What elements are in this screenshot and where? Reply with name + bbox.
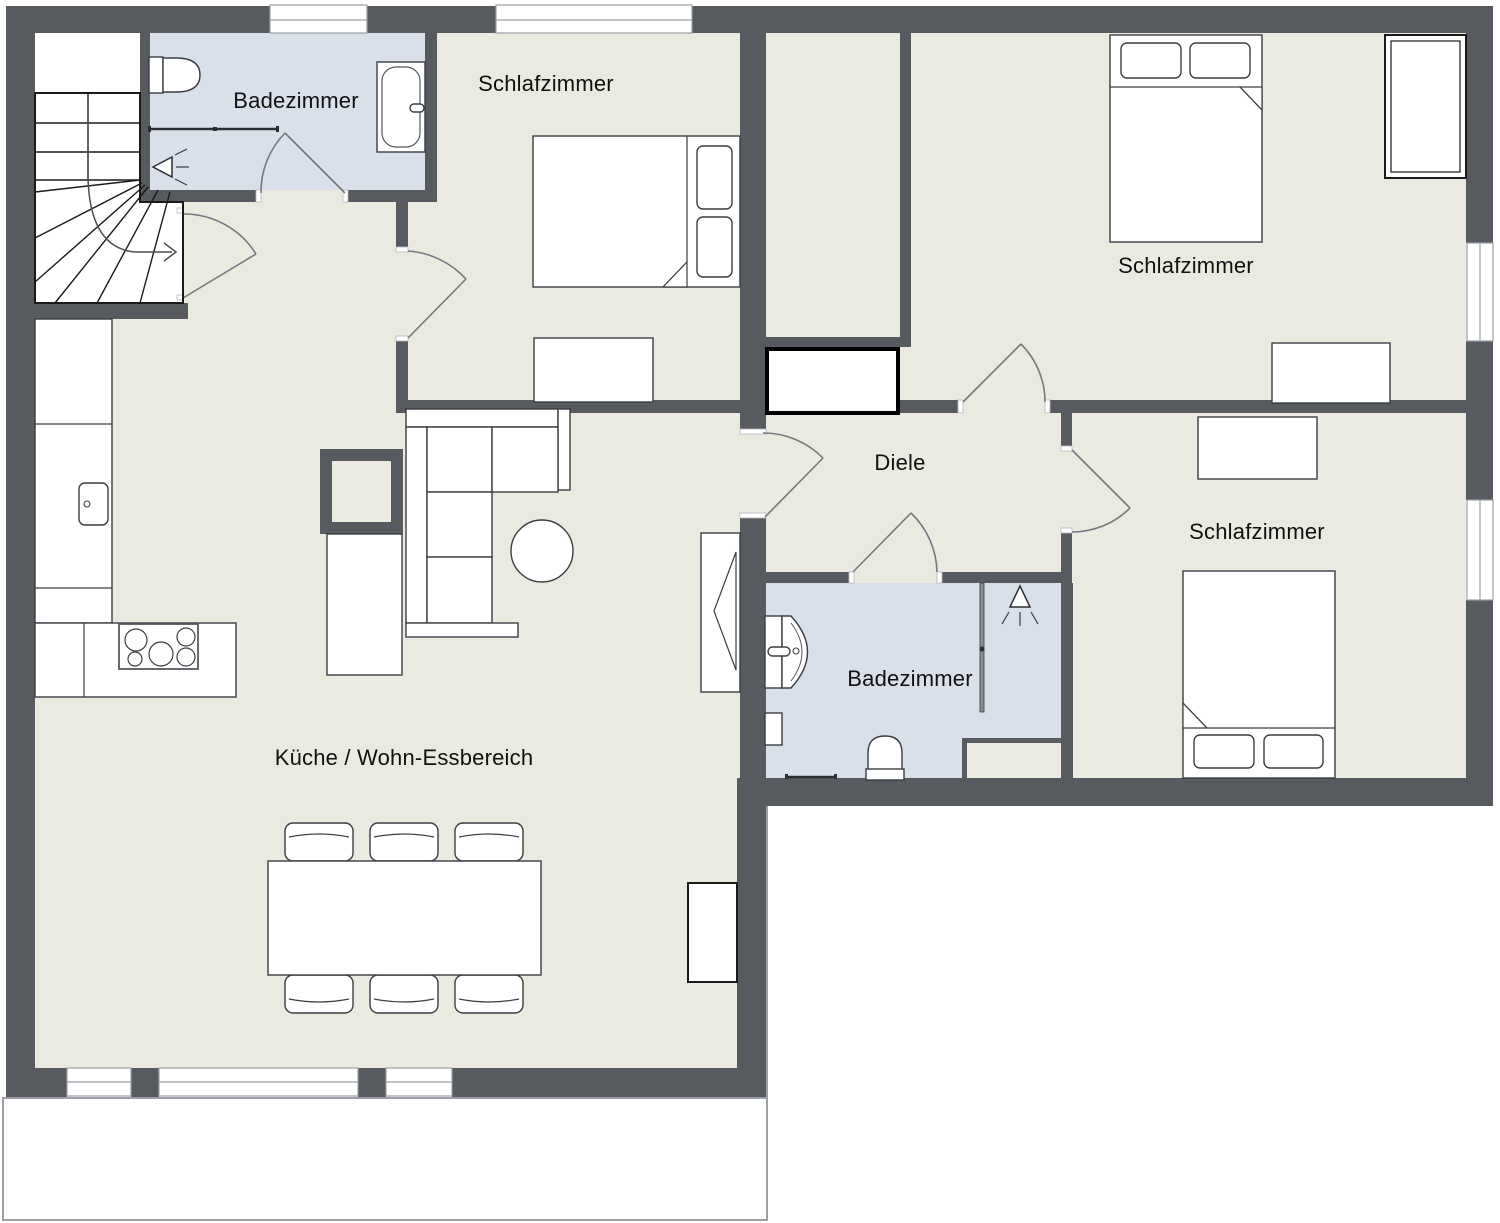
room-label-schlafzimmer-top-right: Schlafzimmer	[1118, 253, 1254, 279]
dresser-icon	[1198, 417, 1317, 479]
dining-table-icon	[268, 823, 541, 1013]
cooktop-icon	[119, 624, 198, 669]
tv-cabinet-icon	[701, 533, 740, 692]
bedroom-right-furniture	[1183, 417, 1335, 778]
sideboard-icon	[327, 534, 402, 675]
room-label-diele: Diele	[874, 450, 925, 476]
window	[1467, 243, 1493, 341]
room-label-badezimmer-top: Badezimmer	[233, 88, 358, 114]
chair-icon	[370, 975, 438, 1013]
window	[1467, 500, 1493, 600]
window	[270, 5, 367, 33]
wardrobe-icon	[1385, 35, 1466, 178]
shower-divider-icon	[980, 583, 985, 712]
window	[496, 5, 692, 33]
shelf-icon	[765, 713, 782, 745]
floor-plan: Badezimmer Schlafzimmer Schlafzimmer Die…	[0, 0, 1500, 1223]
toilet-icon	[866, 736, 904, 780]
chair-icon	[370, 823, 438, 861]
hall-closet-icon	[767, 349, 898, 413]
window	[386, 1068, 452, 1096]
column-icon	[320, 449, 403, 534]
pillow-icon	[1121, 43, 1181, 78]
toilet-icon	[149, 57, 200, 93]
kitchen-sink-icon	[79, 483, 108, 525]
pillow-icon	[1264, 735, 1323, 768]
double-bed-icon	[533, 136, 740, 287]
pillow-icon	[697, 146, 732, 209]
room-label-badezimmer-middle: Badezimmer	[847, 666, 972, 692]
pillow-icon	[697, 217, 732, 277]
chair-icon	[285, 975, 353, 1013]
room-label-schlafzimmer-right: Schlafzimmer	[1189, 519, 1325, 545]
pillow-icon	[1190, 43, 1250, 78]
dresser-icon	[534, 338, 653, 402]
floor-plan-drawing	[0, 0, 1500, 1223]
niche-floor	[967, 743, 1061, 778]
double-bed-icon	[1110, 35, 1262, 242]
window	[67, 1068, 131, 1096]
chair-icon	[285, 823, 353, 861]
pillow-icon	[1194, 735, 1254, 768]
window	[159, 1068, 358, 1096]
room-label-schlafzimmer-top: Schlafzimmer	[478, 71, 614, 97]
dresser-icon	[1272, 343, 1390, 403]
double-bed-icon	[1183, 571, 1335, 778]
room-label-kueche: Küche / Wohn-Essbereich	[275, 745, 534, 771]
bathtub-icon	[377, 62, 425, 152]
coffee-table-icon	[511, 520, 573, 582]
chair-icon	[455, 823, 523, 861]
chair-icon	[455, 975, 523, 1013]
shelf-icon	[688, 883, 737, 982]
